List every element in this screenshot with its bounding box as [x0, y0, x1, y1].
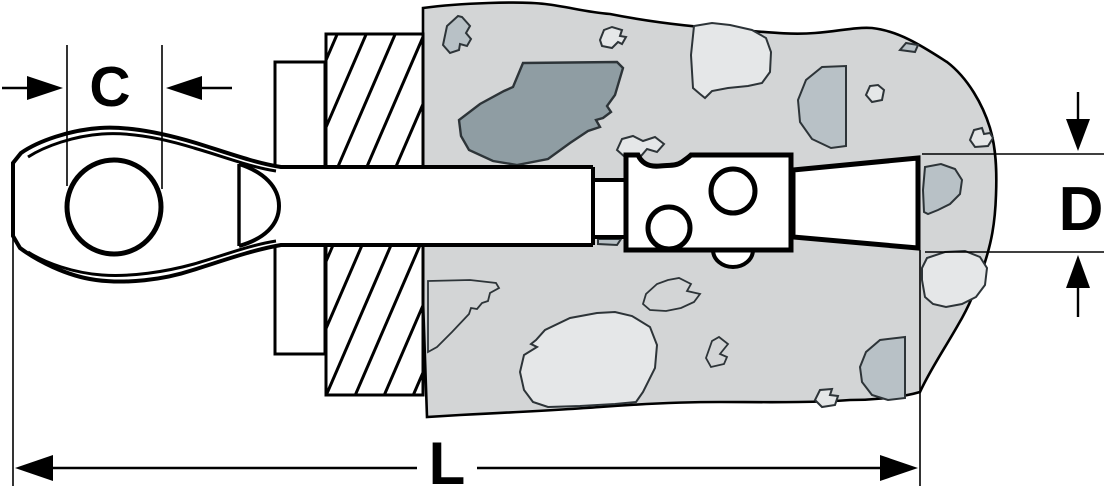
d-arrowhead-bottom [1066, 255, 1090, 288]
aggregate-tiny-light [866, 85, 884, 102]
l-label: L [429, 430, 466, 488]
body-hole-upper [711, 169, 755, 213]
anchor-neck [593, 180, 626, 237]
aggregate-light-right [922, 251, 987, 307]
d-arrowhead-top [1066, 119, 1090, 151]
l-arrowhead-right [880, 455, 918, 481]
anchor-diagram-svg: C D L [0, 0, 1104, 488]
anchor-body-bump [713, 250, 753, 267]
aggregate-sliver-below-connector [598, 239, 621, 245]
eye-hole [67, 160, 161, 254]
c-label: C [89, 55, 130, 119]
aggregate-small-top [600, 27, 626, 48]
c-arrowhead-left [27, 76, 63, 100]
body-hole-lower [648, 207, 690, 249]
expansion-cone [793, 158, 918, 248]
d-label: D [1059, 175, 1104, 244]
anchor-technical-drawing: C D L [0, 0, 1104, 488]
l-arrowhead-left [15, 455, 53, 481]
c-arrowhead-right [166, 76, 202, 100]
